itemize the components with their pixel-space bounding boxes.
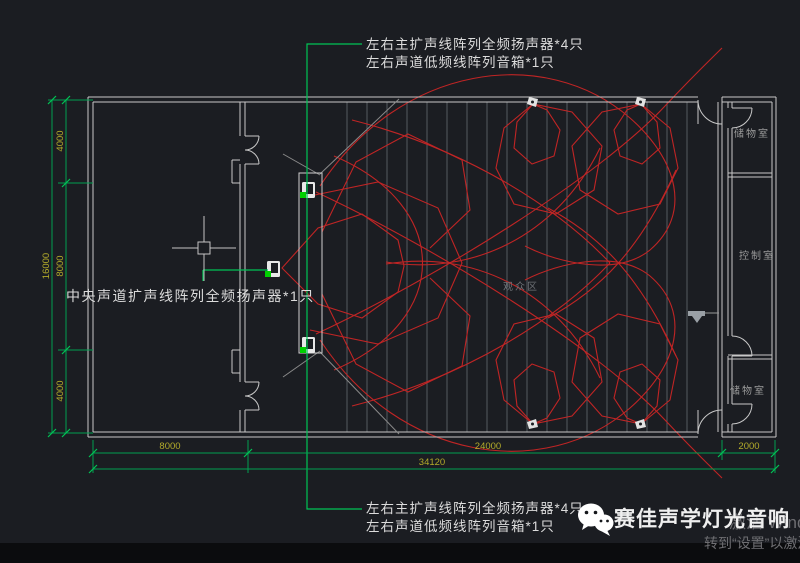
footer-band	[0, 543, 800, 563]
dim-left-top: 4000	[55, 130, 66, 151]
annotation-bottom-line2: 左右声道低频线阵列音箱*1只	[366, 515, 555, 535]
dim-bottom-rooms: 2000	[738, 441, 759, 452]
annotation-top-line1: 左右主扩声线阵列全频扬声器*4只	[366, 33, 584, 53]
wall-speaker-icon	[635, 419, 646, 429]
dim-left-middle: 8000	[55, 255, 66, 276]
dim-left-total: 16000	[41, 253, 52, 279]
room-label-audience: 观众区	[503, 281, 539, 293]
speaker-coverage-pattern	[282, 48, 722, 478]
splay-wall-lines	[283, 99, 399, 434]
annotation-top-line2: 左右声道低频线阵列音箱*1只	[366, 51, 555, 71]
leader-lines	[203, 44, 362, 509]
dim-bottom-stage: 8000	[159, 441, 180, 452]
crosshair-cursor[interactable]	[172, 216, 236, 281]
cad-viewport: 16000 4000 8000 4000 8000 24000 2000 341…	[0, 0, 800, 563]
stage-speaker-array	[265, 173, 322, 353]
dim-bottom-total: 34120	[419, 457, 445, 468]
floor-plan-svg: 16000 4000 8000 4000 8000 24000 2000 341…	[0, 0, 800, 563]
dim-left-bottom: 4000	[55, 380, 66, 401]
door-symbols	[245, 100, 752, 434]
dim-bottom-audience: 24000	[475, 441, 501, 452]
brand-name: 赛佳声学灯光音响	[614, 503, 790, 533]
room-label-storage-bottom: 储物室	[730, 384, 766, 397]
windows-activation-watermark-line2: 转到“设置”以激活Windows	[704, 533, 800, 553]
wechat-icon	[576, 500, 616, 543]
wall-speaker-icon	[527, 97, 538, 107]
projector-symbol	[688, 311, 719, 323]
annotation-center-channel: 中央声道扩声线阵列全频扬声器*1只	[66, 286, 315, 306]
annotation-bottom-line1: 左右主扩声线阵列全频扬声器*4只	[366, 497, 584, 517]
room-label-control: 控制室	[739, 249, 775, 262]
speaker-icon-center	[265, 261, 280, 277]
room-label-storage-top: 储物室	[734, 127, 770, 140]
